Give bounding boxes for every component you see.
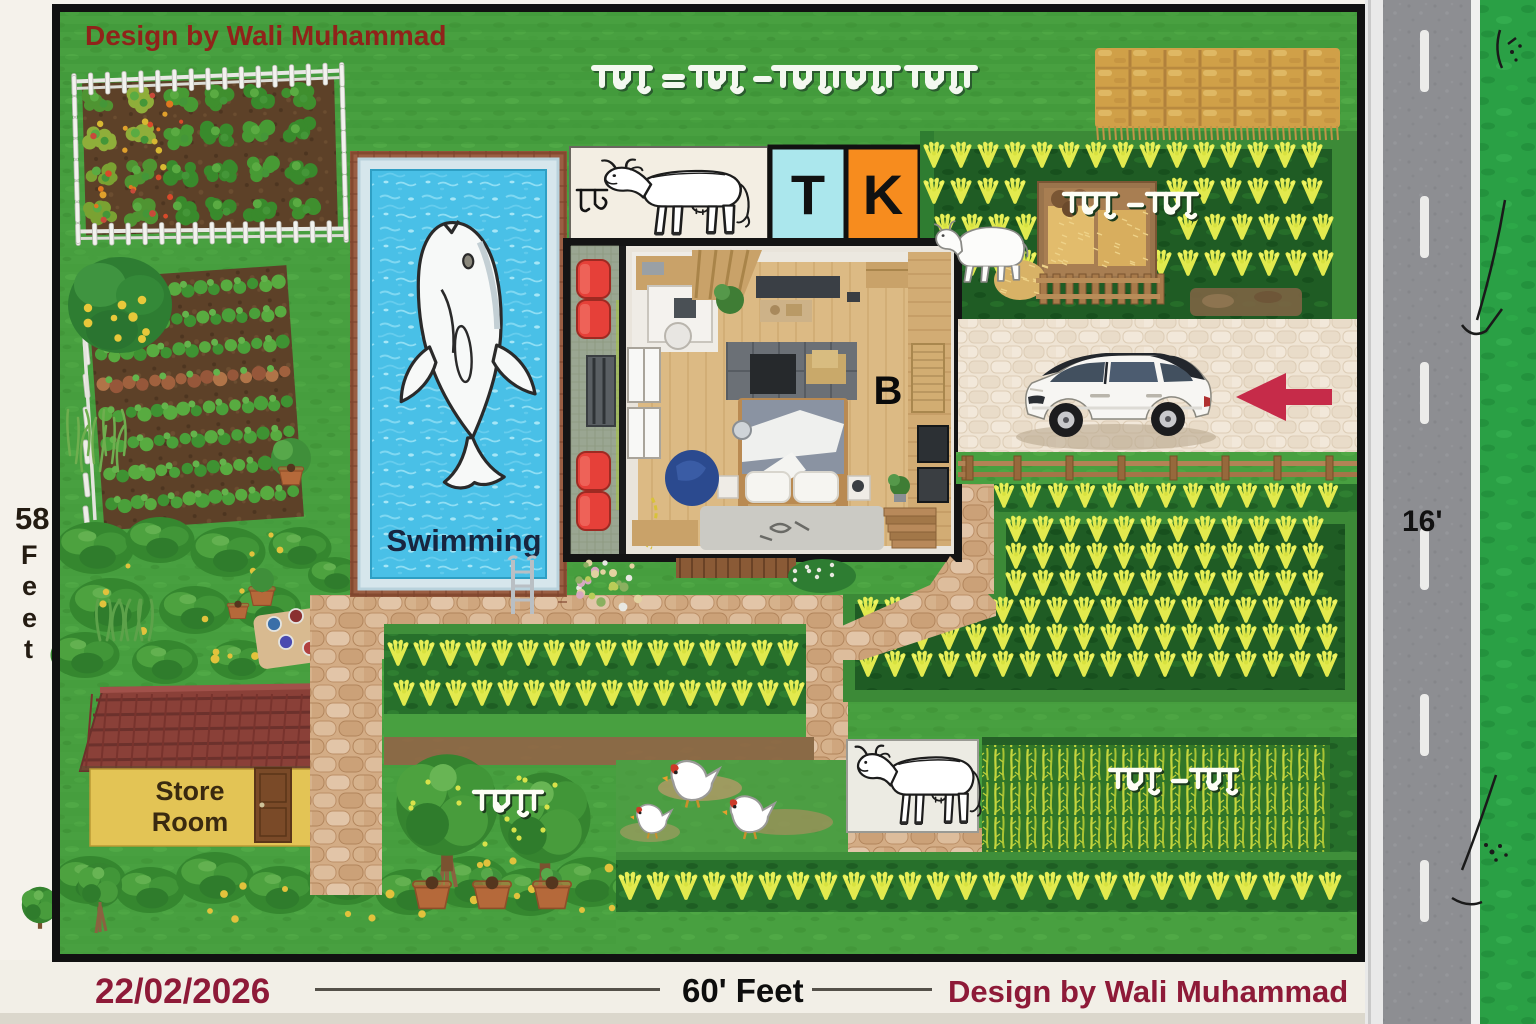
svg-text:Swimming: Swimming <box>386 523 541 558</box>
svg-text:B: B <box>874 369 903 413</box>
svg-text:e: e <box>22 603 37 633</box>
svg-text:60' Feet: 60' Feet <box>682 972 804 1009</box>
svg-text:Store: Store <box>155 776 224 806</box>
svg-text:F: F <box>21 540 38 570</box>
svg-text:e: e <box>22 571 37 601</box>
svg-text:t: t <box>24 634 33 664</box>
svg-text:K: K <box>863 163 903 226</box>
svg-text:58: 58 <box>15 501 49 536</box>
svg-text:16': 16' <box>1402 505 1443 538</box>
svg-text:Design by Wali Muhammad: Design by Wali Muhammad <box>85 20 446 51</box>
svg-text:Design by Wali Muhammad: Design by Wali Muhammad <box>948 974 1348 1009</box>
svg-text:Room: Room <box>152 807 229 837</box>
svg-text:22/02/2026: 22/02/2026 <box>95 972 270 1011</box>
svg-text:T: T <box>791 163 825 226</box>
